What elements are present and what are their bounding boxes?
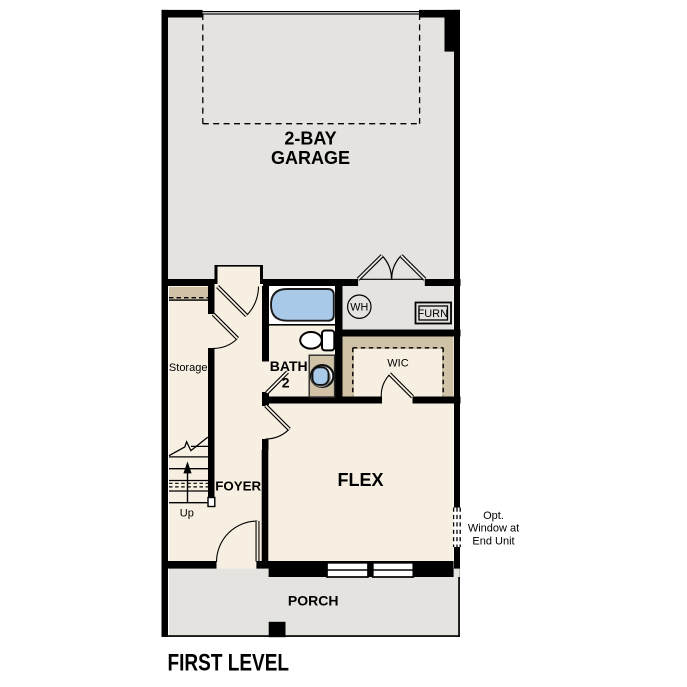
svg-text:2-BAY: 2-BAY — [284, 128, 336, 148]
svg-text:Window at: Window at — [468, 523, 519, 535]
svg-text:FIRST LEVEL: FIRST LEVEL — [168, 650, 290, 677]
svg-text:FOYER: FOYER — [215, 478, 262, 493]
svg-text:Opt.: Opt. — [483, 510, 504, 522]
svg-text:Up: Up — [180, 507, 194, 519]
svg-text:WH: WH — [350, 302, 368, 314]
svg-text:Storage: Storage — [169, 362, 208, 374]
svg-text:FURN: FURN — [418, 308, 449, 320]
svg-text:PORCH: PORCH — [288, 593, 339, 609]
svg-text:GARAGE: GARAGE — [271, 148, 350, 168]
svg-text:2: 2 — [282, 375, 290, 391]
svg-text:End Unit: End Unit — [472, 536, 514, 548]
svg-text:WIC: WIC — [387, 358, 408, 370]
svg-text:BATH: BATH — [270, 358, 308, 374]
svg-text:FLEX: FLEX — [337, 470, 383, 490]
